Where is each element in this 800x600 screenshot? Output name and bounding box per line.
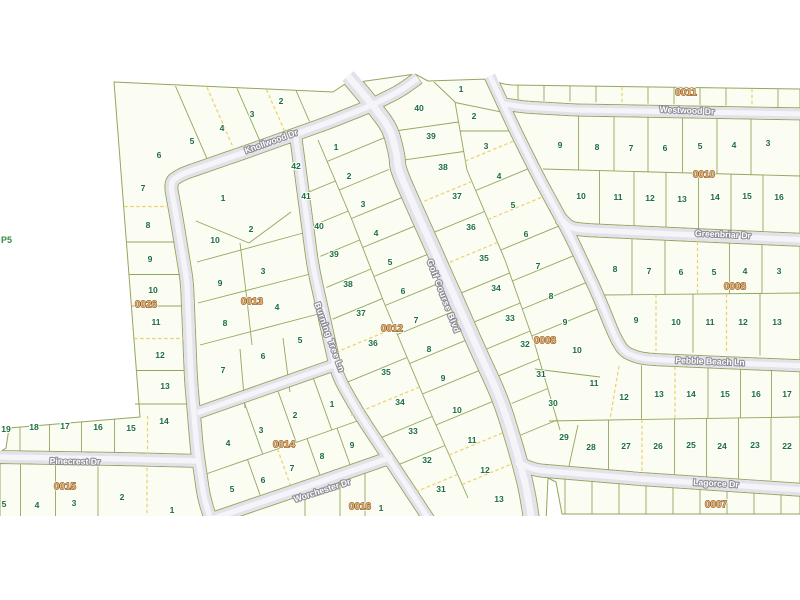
svg-text:8: 8	[320, 451, 325, 461]
svg-text:4: 4	[226, 438, 231, 448]
svg-text:0016: 0016	[349, 502, 372, 513]
svg-text:9: 9	[441, 373, 446, 383]
svg-text:13: 13	[677, 194, 687, 204]
svg-text:11: 11	[589, 378, 598, 388]
svg-text:Pinecrest Dr: Pinecrest Dr	[50, 456, 101, 467]
svg-text:13: 13	[494, 494, 504, 504]
svg-text:6: 6	[524, 229, 529, 239]
svg-text:14: 14	[710, 192, 720, 202]
svg-text:15: 15	[126, 423, 136, 433]
svg-text:13: 13	[772, 317, 782, 327]
svg-text:42: 42	[291, 161, 301, 171]
svg-text:14: 14	[159, 416, 169, 426]
svg-text:4: 4	[275, 302, 280, 312]
svg-text:19: 19	[1, 424, 11, 434]
svg-text:P5: P5	[1, 235, 12, 245]
svg-text:10: 10	[576, 191, 586, 201]
svg-text:6: 6	[679, 267, 684, 277]
svg-text:4: 4	[35, 500, 40, 510]
svg-text:33: 33	[408, 426, 418, 436]
svg-text:2: 2	[293, 410, 298, 420]
svg-text:0015: 0015	[54, 482, 77, 493]
svg-text:34: 34	[491, 283, 501, 293]
svg-text:17: 17	[60, 421, 70, 431]
svg-text:5: 5	[388, 257, 393, 267]
svg-text:12: 12	[738, 317, 748, 327]
svg-text:38: 38	[438, 162, 448, 172]
svg-text:5: 5	[2, 499, 7, 509]
svg-text:37: 37	[356, 308, 366, 318]
svg-text:16: 16	[774, 192, 784, 202]
svg-text:12: 12	[480, 465, 490, 475]
svg-text:15: 15	[720, 389, 730, 399]
svg-text:35: 35	[381, 367, 391, 377]
svg-text:6: 6	[261, 475, 266, 485]
svg-text:3: 3	[777, 266, 782, 276]
svg-text:17: 17	[782, 389, 792, 399]
svg-text:3: 3	[261, 266, 266, 276]
svg-text:7: 7	[141, 183, 146, 193]
svg-text:7: 7	[647, 266, 652, 276]
svg-text:41: 41	[301, 191, 311, 201]
svg-text:0007: 0007	[705, 500, 728, 511]
svg-text:31: 31	[536, 369, 546, 379]
svg-text:2: 2	[249, 224, 254, 234]
svg-text:7: 7	[221, 365, 226, 375]
svg-text:5: 5	[511, 200, 516, 210]
svg-text:36: 36	[368, 338, 378, 348]
svg-text:0008: 0008	[534, 336, 557, 347]
svg-text:2: 2	[279, 96, 284, 106]
svg-text:5: 5	[190, 136, 195, 146]
svg-text:11: 11	[705, 317, 714, 327]
svg-text:14: 14	[686, 389, 696, 399]
svg-text:0014: 0014	[273, 440, 296, 451]
svg-text:8: 8	[223, 318, 228, 328]
svg-text:2: 2	[120, 492, 125, 502]
svg-text:3: 3	[250, 109, 255, 119]
svg-text:5: 5	[712, 267, 717, 277]
svg-text:33: 33	[505, 313, 515, 323]
svg-text:1: 1	[330, 399, 335, 409]
svg-text:7: 7	[536, 261, 541, 271]
svg-text:3: 3	[72, 498, 77, 508]
svg-text:1: 1	[459, 84, 464, 94]
svg-text:39: 39	[329, 249, 339, 259]
svg-text:40: 40	[414, 103, 424, 113]
svg-text:1: 1	[334, 142, 339, 152]
svg-text:29: 29	[559, 432, 569, 442]
svg-text:0011: 0011	[675, 88, 697, 99]
svg-text:39: 39	[426, 131, 436, 141]
svg-text:9: 9	[558, 140, 563, 150]
svg-text:11: 11	[467, 435, 476, 445]
svg-text:12: 12	[155, 350, 165, 360]
svg-text:3: 3	[259, 425, 264, 435]
svg-text:35: 35	[479, 253, 489, 263]
svg-text:37: 37	[452, 191, 462, 201]
svg-text:7: 7	[629, 143, 634, 153]
svg-text:4: 4	[743, 266, 748, 276]
svg-text:13: 13	[654, 389, 664, 399]
svg-text:2: 2	[472, 111, 477, 121]
svg-text:28: 28	[586, 442, 596, 452]
svg-text:4: 4	[220, 123, 225, 133]
svg-text:0008: 0008	[724, 282, 747, 293]
svg-text:6: 6	[157, 150, 162, 160]
svg-text:22: 22	[782, 441, 792, 451]
svg-text:24: 24	[717, 441, 727, 451]
svg-text:10: 10	[210, 235, 220, 245]
svg-text:6: 6	[261, 351, 266, 361]
svg-text:4: 4	[497, 171, 502, 181]
svg-text:7: 7	[290, 463, 295, 473]
svg-text:30: 30	[548, 398, 558, 408]
svg-text:18: 18	[29, 422, 39, 432]
svg-text:0012: 0012	[381, 324, 404, 335]
svg-text:1: 1	[221, 193, 226, 203]
svg-text:13: 13	[160, 381, 170, 391]
svg-text:9: 9	[148, 254, 153, 264]
svg-text:16: 16	[751, 389, 761, 399]
svg-text:12: 12	[645, 193, 655, 203]
svg-text:26: 26	[653, 441, 663, 451]
svg-text:23: 23	[750, 440, 760, 450]
svg-text:6: 6	[401, 286, 406, 296]
svg-text:1: 1	[170, 505, 175, 515]
svg-text:4: 4	[374, 228, 379, 238]
svg-text:16: 16	[93, 422, 103, 432]
svg-text:8: 8	[427, 344, 432, 354]
svg-text:32: 32	[422, 455, 432, 465]
svg-text:8: 8	[613, 264, 618, 274]
svg-text:5: 5	[298, 335, 303, 345]
svg-text:4: 4	[732, 140, 737, 150]
svg-text:10: 10	[572, 345, 582, 355]
svg-text:8: 8	[146, 220, 151, 230]
svg-text:32: 32	[520, 339, 530, 349]
svg-text:9: 9	[634, 315, 639, 325]
svg-text:8: 8	[595, 142, 600, 152]
svg-text:6: 6	[663, 143, 668, 153]
svg-text:10: 10	[671, 317, 681, 327]
svg-text:2: 2	[347, 171, 352, 181]
svg-text:10: 10	[452, 405, 462, 415]
svg-text:9: 9	[563, 317, 568, 327]
svg-text:7: 7	[414, 315, 419, 325]
svg-text:27: 27	[621, 441, 631, 451]
svg-text:5: 5	[230, 484, 235, 494]
svg-text:3: 3	[766, 138, 771, 148]
svg-text:25: 25	[686, 440, 696, 450]
svg-text:9: 9	[218, 278, 223, 288]
svg-text:9: 9	[350, 440, 355, 450]
svg-text:5: 5	[698, 141, 703, 151]
svg-text:11: 11	[151, 317, 160, 327]
svg-text:1: 1	[379, 503, 384, 513]
svg-text:36: 36	[466, 222, 476, 232]
svg-text:34: 34	[395, 397, 405, 407]
svg-text:0026: 0026	[135, 300, 158, 311]
svg-text:3: 3	[361, 199, 366, 209]
svg-text:40: 40	[314, 221, 324, 231]
svg-text:31: 31	[436, 484, 446, 494]
svg-text:0010: 0010	[693, 170, 716, 181]
svg-text:38: 38	[343, 279, 353, 289]
svg-text:3: 3	[484, 141, 489, 151]
svg-text:15: 15	[742, 191, 752, 201]
svg-text:12: 12	[619, 392, 629, 402]
svg-text:11: 11	[613, 192, 622, 202]
svg-text:8: 8	[549, 291, 554, 301]
svg-text:10: 10	[148, 285, 158, 295]
svg-text:0013: 0013	[241, 297, 264, 308]
